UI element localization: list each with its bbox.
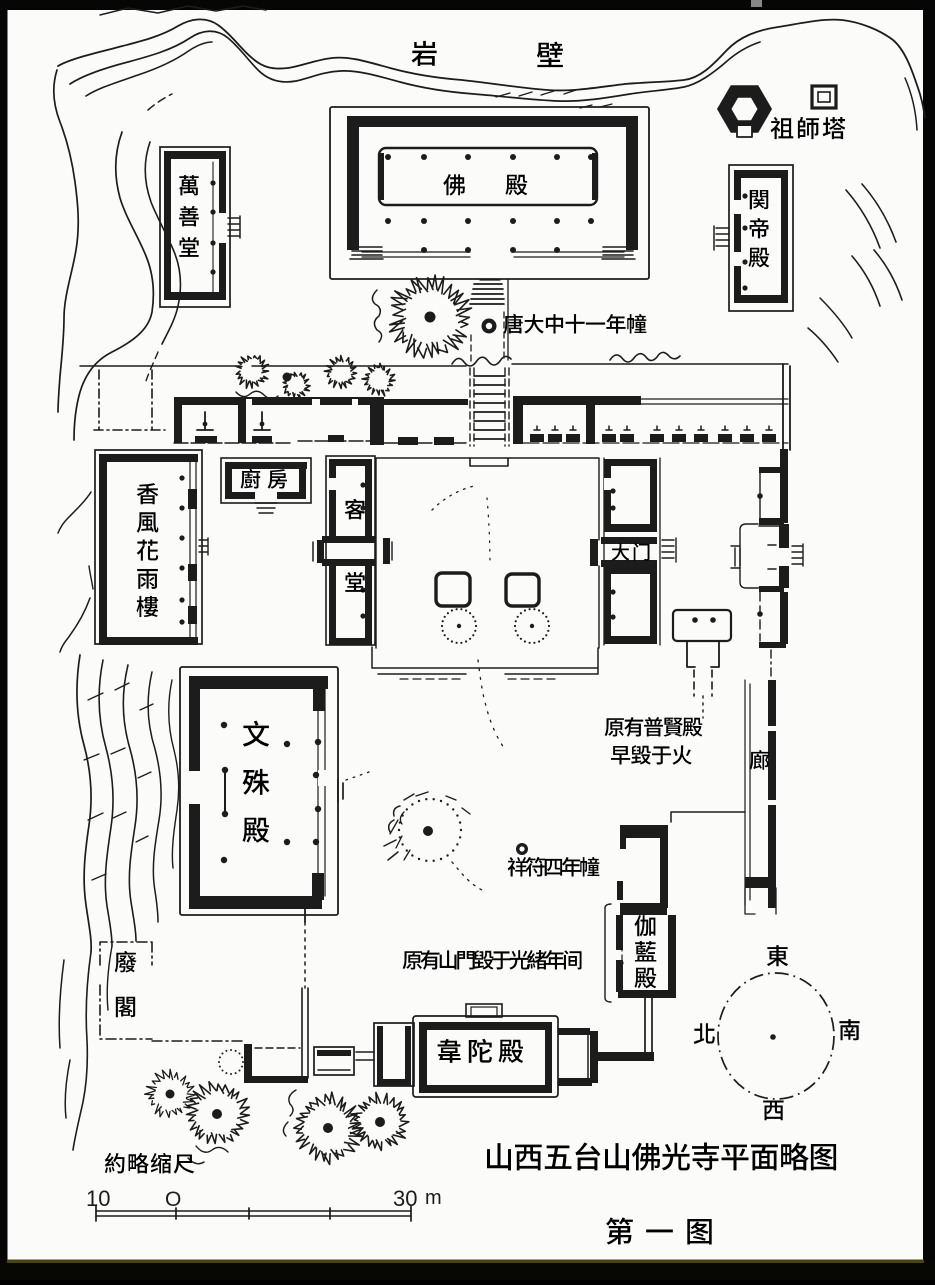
svg-text:10: 10 [86, 1186, 110, 1211]
svg-text:O: O [165, 1188, 181, 1211]
svg-text:30: 30 [393, 1186, 417, 1211]
svg-text:m: m [425, 1187, 442, 1209]
